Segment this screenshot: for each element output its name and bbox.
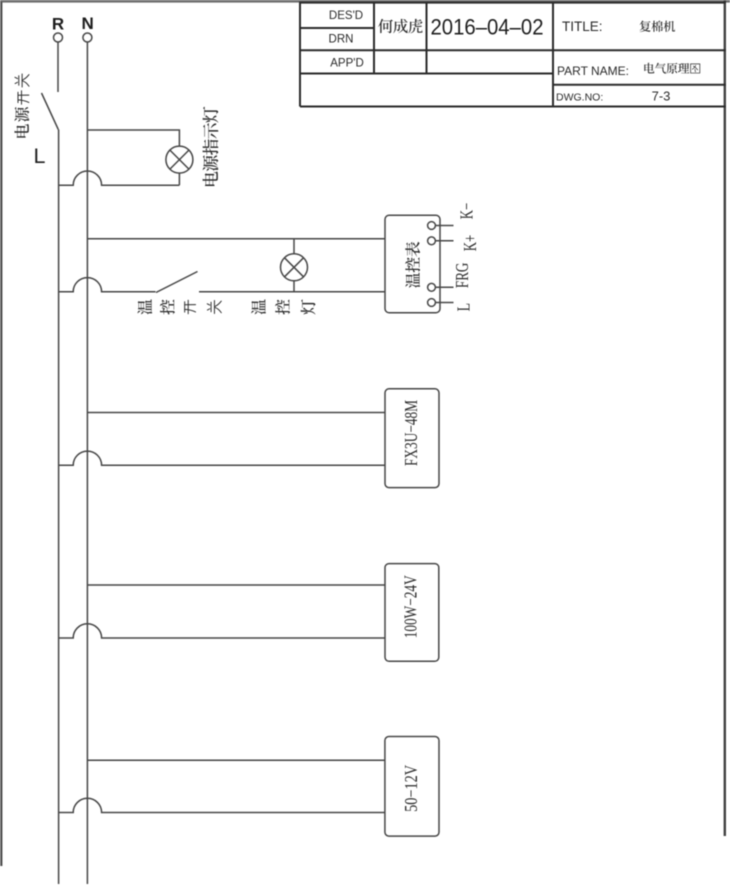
svg-text:APP'D: APP'D	[330, 57, 364, 69]
svg-text:100W−24V: 100W−24V	[401, 575, 421, 638]
svg-text:K−: K−	[456, 203, 476, 220]
svg-text:7-3: 7-3	[652, 89, 671, 104]
svg-text:N: N	[81, 14, 93, 33]
svg-text:50−12V: 50−12V	[401, 765, 421, 812]
svg-text:K+: K+	[460, 235, 480, 252]
svg-text:DES'D: DES'D	[329, 10, 363, 22]
svg-text:2016–04–02: 2016–04–02	[431, 15, 544, 40]
svg-text:FRG: FRG	[452, 263, 472, 289]
svg-text:L: L	[34, 144, 46, 168]
svg-text:DRN: DRN	[329, 34, 354, 46]
svg-text:R: R	[52, 14, 64, 33]
svg-text:PART NAME:: PART NAME:	[557, 64, 629, 78]
svg-text:DWG.NO:: DWG.NO:	[556, 92, 603, 104]
svg-text:FX3U−48M: FX3U−48M	[401, 400, 421, 466]
svg-text:L: L	[453, 303, 473, 312]
svg-text:TITLE:: TITLE:	[562, 19, 603, 34]
